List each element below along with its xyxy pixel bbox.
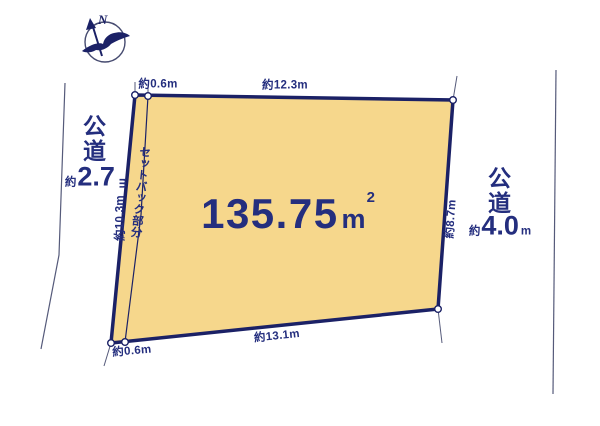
compass-needle-icon bbox=[93, 27, 102, 56]
vertex-dot bbox=[108, 340, 115, 347]
parcel-area-label: 135.75 m 2 bbox=[201, 193, 375, 235]
vertex-dot bbox=[122, 339, 129, 346]
compass: N bbox=[82, 12, 130, 62]
compass-arrowhead-icon bbox=[86, 18, 96, 30]
dimension-top-setback: 約0.6m bbox=[138, 79, 177, 91]
north-label: N bbox=[97, 12, 108, 27]
left-road-width-unit: m bbox=[116, 178, 128, 188]
left-road-width-value: 2.7 bbox=[77, 164, 115, 191]
right-road-edge-line bbox=[553, 70, 556, 394]
left-road-name: 公道 bbox=[81, 114, 104, 164]
vertex-dot bbox=[450, 97, 457, 104]
right-road-width-unit: m bbox=[521, 227, 531, 239]
right-road-width: 約 4.0 m bbox=[469, 213, 531, 240]
right-road-name: 公道 bbox=[486, 166, 509, 216]
area-value: 135.75 bbox=[201, 193, 338, 235]
dimension-top-edge: 約12.3m bbox=[262, 80, 308, 92]
vertex-dot bbox=[435, 306, 442, 313]
land-plot-diagram: N 約0.6m 約12.3m 約10.3m 約8.7m 約13.1m 約0.6m… bbox=[0, 0, 600, 426]
left-road-width-prefix: 約 bbox=[65, 178, 77, 190]
tick-line bbox=[438, 309, 442, 343]
right-road-width-prefix: 約 bbox=[469, 227, 481, 239]
vertex-dot bbox=[145, 93, 152, 100]
area-unit: m bbox=[342, 206, 366, 233]
compass-bird-icon bbox=[82, 32, 130, 52]
left-road-width: 約 2.7 m bbox=[65, 164, 127, 191]
dimension-left-edge: 約10.3m bbox=[115, 195, 127, 241]
vertex-dot bbox=[132, 92, 139, 99]
left-road-edge-line bbox=[41, 83, 65, 349]
right-road-width-value: 4.0 bbox=[481, 213, 519, 240]
area-exponent: 2 bbox=[367, 190, 375, 205]
